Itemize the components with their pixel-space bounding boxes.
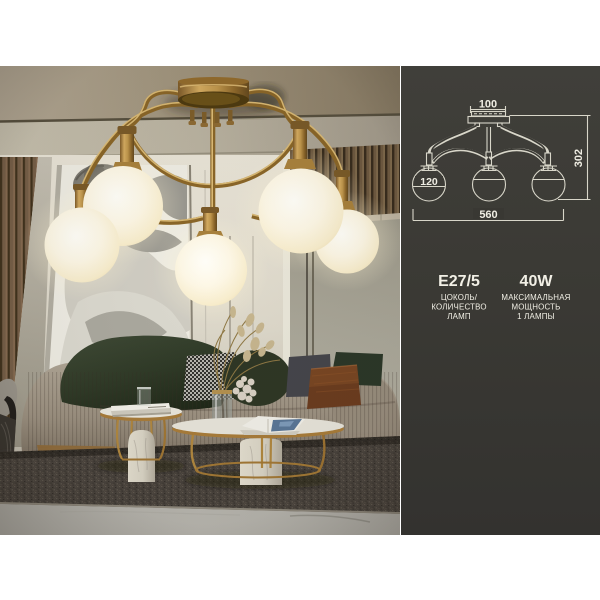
- svg-text:100: 100: [479, 99, 497, 111]
- svg-text:1 ЛАМПЫ: 1 ЛАМПЫ: [517, 312, 555, 321]
- svg-text:120: 120: [420, 176, 438, 188]
- svg-text:302: 302: [573, 149, 585, 167]
- svg-text:ЦОКОЛЬ/: ЦОКОЛЬ/: [441, 293, 478, 302]
- svg-text:ЛАМП: ЛАМП: [447, 312, 471, 321]
- svg-text:МОЩНОСТЬ: МОЩНОСТЬ: [512, 303, 561, 312]
- svg-text:E27/5: E27/5: [438, 273, 480, 290]
- svg-text:МАКСИМАЛЬНАЯ: МАКСИМАЛЬНАЯ: [501, 293, 570, 302]
- svg-text:КОЛИЧЕСТВО: КОЛИЧЕСТВО: [431, 303, 486, 312]
- svg-text:40W: 40W: [520, 273, 554, 290]
- svg-text:560: 560: [479, 209, 497, 221]
